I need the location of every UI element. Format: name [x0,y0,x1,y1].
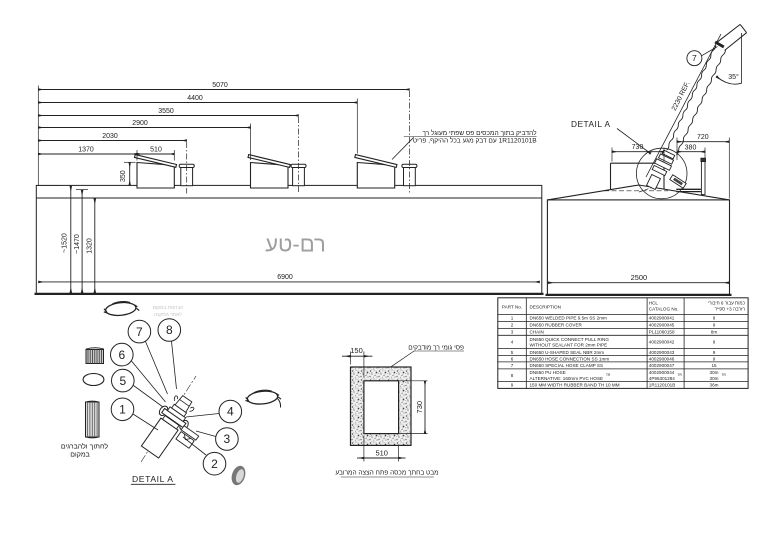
svg-text:4002900045: 4002900045 [649,323,675,328]
svg-text:DN650 RUBBER COVER: DN650 RUBBER COVER [530,323,583,328]
svg-text:~1470: ~1470 [74,234,81,254]
svg-text:DN650 SPECIAL HOSE CLAMP SS: DN650 SPECIAL HOSE CLAMP SS [530,363,604,368]
svg-text:CHAIN: CHAIN [530,330,544,335]
svg-text:35°: 35° [728,73,739,81]
svg-text:9: 9 [713,350,716,355]
svg-text:9: 9 [713,356,716,361]
svg-text:DETAIL A: DETAIL A [571,119,611,129]
svg-text:6: 6 [118,348,125,362]
svg-text:רם-טע: רם-טע [265,232,326,257]
svg-text:9: 9 [713,316,716,321]
svg-text:2030: 2030 [102,133,118,140]
svg-text:1: 1 [119,403,126,417]
svg-text:HCL: HCL [649,301,659,306]
svg-text:510: 510 [150,146,162,153]
svg-text:36m: 36m [710,383,719,388]
svg-text:4002900041: 4002900041 [649,316,675,321]
svg-text:כמות עבור 6 חיבורי: כמות עבור 6 חיבורי [708,301,746,306]
svg-text:לחתוך ולהברגים: לחתוך ולהברגים [61,442,109,450]
svg-text:9: 9 [713,323,716,328]
svg-text:TR: TR [722,373,727,377]
svg-text:4400: 4400 [187,95,203,102]
svg-text:730: 730 [415,401,424,414]
svg-text:7: 7 [136,325,143,339]
svg-text:4002900044: 4002900044 [649,370,675,375]
svg-text:380: 380 [685,145,697,152]
svg-text:8: 8 [511,373,514,378]
svg-text:WITHOUT SEALANT FOR 2mm PIPE: WITHOUT SEALANT FOR 2mm PIPE [530,343,608,348]
svg-text:עם דבק מגע בכל ההיקף, פריט ‎1R: עם דבק מגע בכל ההיקף, פריט ‎1R1120101B‎ [413,136,537,144]
svg-text:8: 8 [166,323,173,337]
svg-text:150 MM WIDTH RUBBER BAND TH 1: 150 MM WIDTH RUBBER BAND TH 10 MM [530,383,620,388]
svg-text:4: 4 [227,405,234,419]
svg-text:4002900042: 4002900042 [649,340,675,345]
svg-text:DN650 U-SHAPED SEAL NBR 2mm: DN650 U-SHAPED SEAL NBR 2mm [530,350,605,355]
svg-text:רזרבה 3+ ספייר: רזרבה 3+ ספייר [715,307,746,312]
svg-text:730: 730 [632,144,644,151]
svg-text:TR: TR [678,373,683,377]
svg-text:7: 7 [692,53,697,63]
svg-text:מבט בחתך מכסה פתח הצצה המרובע: מבט בחתך מכסה פתח הצצה המרובע [335,470,438,477]
svg-text:4P96301284: 4P96301284 [649,376,676,381]
svg-text:PL11060158: PL11060158 [649,330,675,335]
svg-text:הברגות במקום: הברגות במקום [153,305,184,311]
svg-text:6: 6 [511,356,514,361]
svg-text:5: 5 [511,350,514,355]
svg-text:2900: 2900 [132,120,148,127]
svg-text:4002900046: 4002900046 [649,356,675,361]
svg-text:פסי גומי רך מודבקים: פסי גומי רך מודבקים [408,345,464,352]
svg-text:DN650 HOSE CONNECTION SS 1mm: DN650 HOSE CONNECTION SS 1mm [530,356,610,361]
svg-text:ALTERNATIVE: 160mm PVC HOSE: ALTERNATIVE: 160mm PVC HOSE [530,376,604,381]
svg-text:4002900043: 4002900043 [649,350,675,355]
svg-text:6900: 6900 [277,274,293,281]
svg-text:4002900047: 4002900047 [649,363,675,368]
svg-text:לאחר התקנה: לאחר התקנה [154,311,182,318]
svg-text:510: 510 [375,449,388,458]
svg-text:CATALOG No.: CATALOG No. [649,307,679,312]
svg-text:במקום: במקום [70,451,90,458]
svg-text:TR: TR [606,373,611,377]
svg-text:5070: 5070 [212,82,228,89]
svg-text:3550: 3550 [158,108,174,115]
svg-text:7: 7 [511,363,514,368]
svg-text:1320: 1320 [87,238,94,254]
svg-text:720: 720 [697,134,709,141]
svg-text:DN650 WELDED PIPE 9.5m SS 2mm: DN650 WELDED PIPE 9.5m SS 2mm [530,316,608,321]
svg-text:PART No.: PART No. [502,305,522,310]
svg-text:30m: 30m [710,376,719,381]
svg-text:350: 350 [120,170,127,182]
svg-text:9: 9 [511,383,514,388]
svg-text:~1520: ~1520 [62,233,69,253]
svg-text:8m: 8m [711,330,718,335]
svg-text:1: 1 [511,316,514,321]
svg-text:5: 5 [119,374,126,388]
svg-text:DESCRIPTION: DESCRIPTION [530,305,561,310]
svg-text:להדביק בתוך המכסים פס שפתי מעו: להדביק בתוך המכסים פס שפתי מעוגל רך [422,129,537,137]
svg-text:DN650 QUICK CONNECT PULL RING: DN650 QUICK CONNECT PULL RING [530,337,610,342]
svg-text:9: 9 [713,340,716,345]
svg-text:2: 2 [211,457,218,471]
svg-text:3: 3 [224,432,231,446]
svg-text:15: 15 [711,363,717,368]
svg-text:4: 4 [511,340,514,345]
svg-text:1R1120101B: 1R1120101B [649,383,675,388]
svg-text:DN650 PU HOSE: DN650 PU HOSE [530,370,566,375]
svg-text:1370: 1370 [78,146,94,153]
svg-text:150: 150 [350,346,363,355]
svg-text:2500: 2500 [631,273,647,282]
svg-text:3: 3 [511,330,514,335]
svg-text:DETAIL A: DETAIL A [132,474,174,484]
svg-text:30m: 30m [710,370,719,375]
svg-text:2: 2 [511,323,514,328]
